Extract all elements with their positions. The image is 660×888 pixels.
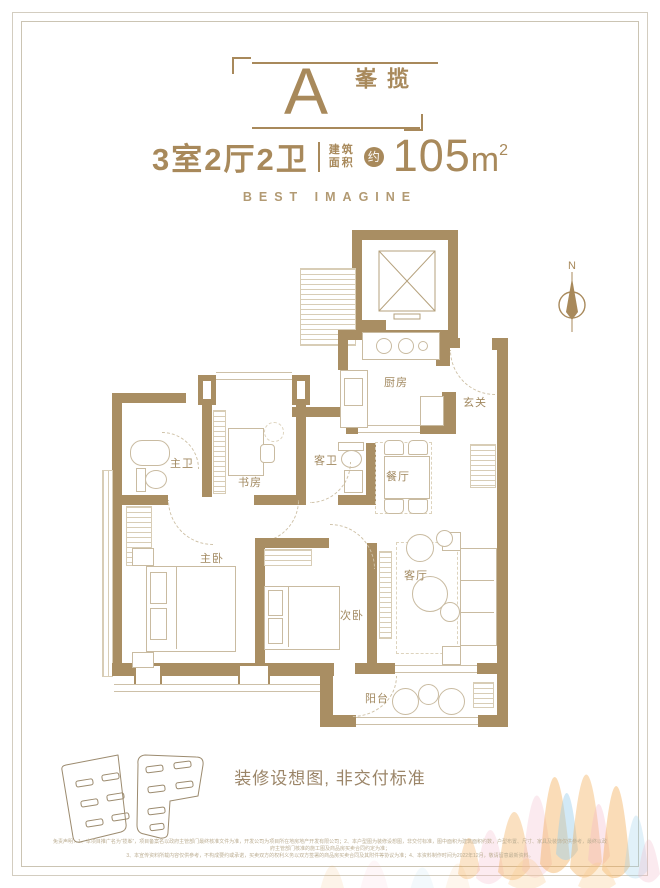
side-table-icon xyxy=(442,646,461,665)
bed-line xyxy=(288,587,289,647)
wall xyxy=(477,663,508,674)
entry-door-arc xyxy=(450,350,495,395)
pillow xyxy=(268,590,283,616)
room-label-guest-bath: 客卫 xyxy=(314,452,338,468)
chair-icon xyxy=(384,499,404,514)
wardrobe-icon xyxy=(264,549,312,566)
stove-knob xyxy=(418,341,428,351)
wall xyxy=(355,663,395,674)
disclaimer: 免责声明：1、本项目推广名为“揽峯”，项目备案名以政府主管部门最终核准文件为准，… xyxy=(52,839,608,860)
pillow xyxy=(150,572,167,604)
planter-icon xyxy=(473,682,494,708)
column-window xyxy=(295,379,307,401)
room-label-living: 客厅 xyxy=(404,567,428,583)
disclaimer-line2: 3、本宣传资料所载内容仅供参考，不构成要约或承诺，买卖双方的权利义务以双方签署的… xyxy=(52,853,608,860)
compass-north-icon: N xyxy=(552,258,592,338)
wall xyxy=(320,663,333,718)
balcony-chair-icon xyxy=(392,688,419,715)
floorplan-poster: A 揽峯 3室2厅2卫 建筑 面积 约 105m2 BEST IMAGINE N xyxy=(0,0,660,888)
wall xyxy=(352,230,458,240)
sideboard-icon xyxy=(470,444,496,488)
sofa-icon xyxy=(460,548,497,646)
title-bracket-top-left xyxy=(232,57,251,74)
area-value-group: 105m2 xyxy=(393,133,508,180)
site-key-plan xyxy=(48,748,213,848)
wall xyxy=(292,407,340,417)
room-label-dining: 餐厅 xyxy=(386,468,410,484)
compass-label: N xyxy=(568,260,576,272)
elevator-icon xyxy=(378,250,438,320)
wall xyxy=(497,678,508,727)
bed-line xyxy=(176,567,177,649)
coffee-table-icon xyxy=(440,602,460,622)
room-label-second-bedroom: 次卧 xyxy=(340,607,364,623)
chair-icon xyxy=(384,440,404,455)
door-arc xyxy=(330,524,375,569)
wall xyxy=(338,330,348,370)
window xyxy=(114,684,332,692)
pillow xyxy=(268,618,283,644)
title-rule-bottom xyxy=(252,127,420,129)
area-label-line1: 建筑 xyxy=(329,144,355,156)
room-label-study: 书房 xyxy=(238,474,262,490)
armchair-icon xyxy=(406,534,434,562)
sofa-line xyxy=(461,612,494,613)
unit-name: 揽峯 xyxy=(348,67,412,98)
spec-row: 3室2厅2卫 建筑 面积 约 105m2 xyxy=(0,133,660,180)
window xyxy=(102,470,113,677)
room-count-text: 3室2厅2卫 xyxy=(152,134,309,179)
wall xyxy=(497,347,508,678)
area-unit: m xyxy=(471,141,499,179)
chair-icon xyxy=(260,444,275,463)
bookcase-icon xyxy=(213,410,226,494)
nightstand-icon xyxy=(132,652,154,668)
wall xyxy=(112,393,122,675)
area-label-line2: 面积 xyxy=(329,157,355,169)
kitchen-sink xyxy=(344,378,363,406)
tagline: BEST IMAGINE xyxy=(0,190,660,204)
sliding-door xyxy=(395,665,477,673)
wall xyxy=(263,538,329,548)
window xyxy=(216,372,292,380)
balcony-table-icon xyxy=(418,684,439,705)
wall xyxy=(352,320,386,330)
room-label-foyer: 玄关 xyxy=(463,394,487,410)
caption: 装修设想图, 非交付标准 xyxy=(0,764,660,789)
spec-divider xyxy=(318,142,320,172)
fridge-icon xyxy=(420,396,444,426)
door-arc xyxy=(256,500,299,543)
wall xyxy=(320,715,356,727)
room-label-master-bath: 主卫 xyxy=(170,455,194,471)
desk-icon xyxy=(228,428,264,476)
chair-icon xyxy=(408,440,428,455)
tv-console-icon xyxy=(379,551,392,639)
stool-icon xyxy=(436,530,453,547)
unit-letter: A xyxy=(270,58,342,124)
plant-icon xyxy=(264,422,284,442)
toilet-icon xyxy=(145,470,167,489)
area-label: 建筑 面积 xyxy=(329,144,355,170)
title-bracket-bottom-right xyxy=(404,114,423,131)
column-window xyxy=(201,379,213,401)
approx-badge: 约 xyxy=(364,147,384,167)
area-value: 105 xyxy=(393,130,471,181)
wall xyxy=(448,230,458,342)
disclaimer-line1: 免责声明：1、本项目推广名为“揽峯”，项目备案名以政府主管部门最终核准文件为准，… xyxy=(52,839,608,853)
wall xyxy=(448,338,460,348)
area-exponent: 2 xyxy=(499,142,508,159)
room-label-master-bedroom: 主卧 xyxy=(200,550,224,566)
chair-icon xyxy=(408,499,428,514)
wall xyxy=(118,393,186,403)
room-label-kitchen: 厨房 xyxy=(384,374,408,390)
stove-burner xyxy=(376,338,392,354)
pillow xyxy=(150,608,167,640)
window xyxy=(356,717,478,725)
wall xyxy=(202,405,212,497)
sofa-line xyxy=(461,580,494,581)
nightstand-icon xyxy=(132,548,154,566)
balcony-chair-icon xyxy=(438,688,465,715)
room-label-balcony: 阳台 xyxy=(365,690,389,706)
door-arc xyxy=(168,500,213,545)
stove-burner xyxy=(398,338,414,354)
wall xyxy=(296,405,306,497)
wall xyxy=(122,495,168,505)
